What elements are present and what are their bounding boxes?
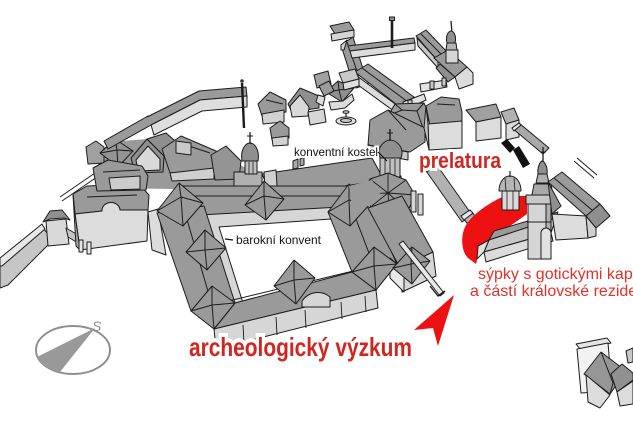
svg-text:prelatura: prelatura: [419, 148, 502, 173]
svg-text:archeologický výzkum: archeologický výzkum: [189, 332, 412, 362]
svg-text:sýpky s gotickými kaplemi: sýpky s gotickými kaplemi: [478, 266, 633, 283]
svg-text:a částí královské rezidence: a částí královské rezidence: [470, 283, 633, 300]
svg-text:S: S: [92, 318, 102, 334]
svg-text:konventní kostel: konventní kostel: [294, 145, 378, 159]
svg-text:barokní konvent: barokní konvent: [236, 233, 322, 247]
